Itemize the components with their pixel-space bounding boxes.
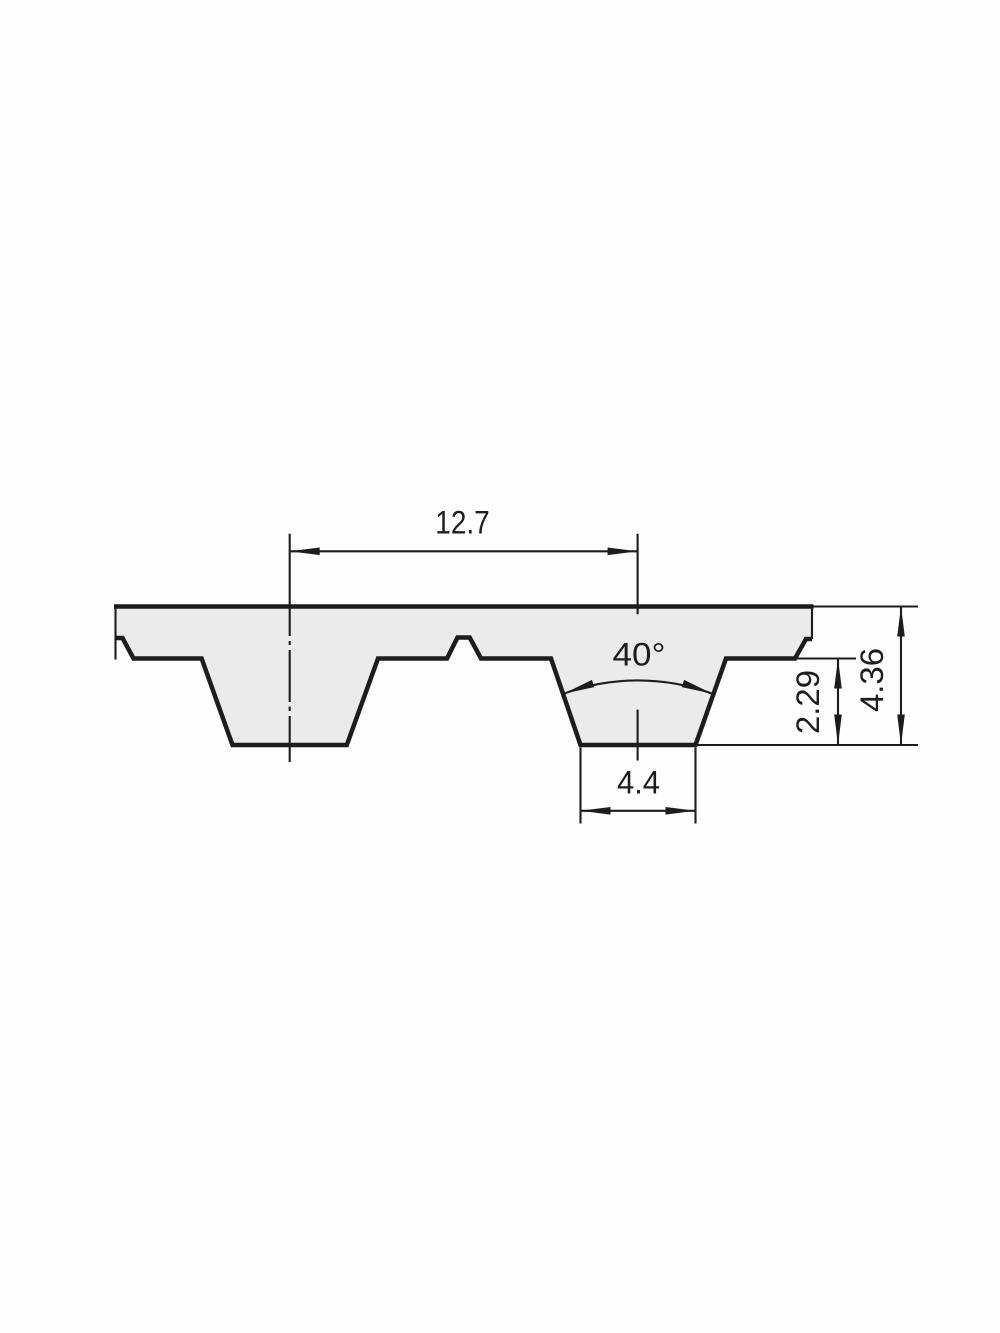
svg-text:40°: 40° (613, 637, 666, 673)
svg-text:2.29: 2.29 (790, 670, 826, 734)
svg-text:4.4: 4.4 (617, 765, 660, 801)
svg-text:12.7: 12.7 (435, 505, 490, 541)
svg-text:4.36: 4.36 (854, 648, 890, 712)
